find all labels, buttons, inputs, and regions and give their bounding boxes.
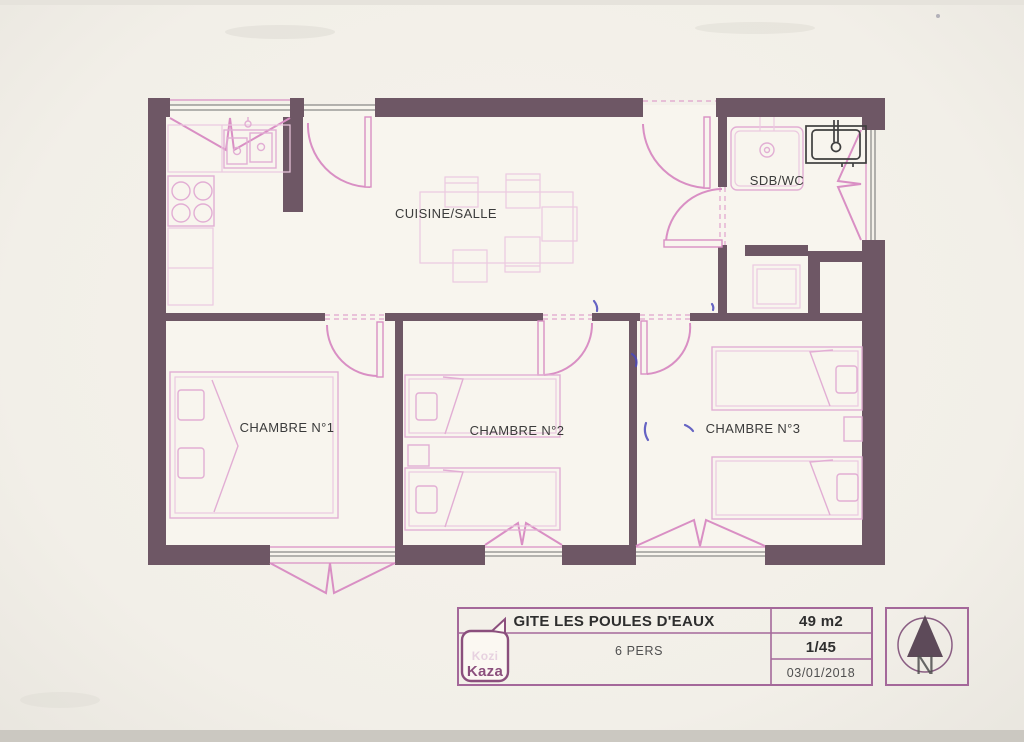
north-letter: N (915, 650, 935, 680)
drawing-date: 03/01/2018 (787, 666, 856, 680)
room-label-sdb: SDB/WC (750, 173, 804, 188)
smudge (20, 692, 100, 708)
room-label-chambre3: CHAMBRE N°3 (706, 421, 801, 436)
kozikaza-logo: Kozi Kaza (462, 619, 508, 681)
speck (936, 14, 940, 18)
scan-edge-bottom (0, 730, 1024, 742)
smudge (225, 25, 335, 39)
logo-fold (492, 619, 505, 633)
title-block: GITE LES POULES D'EAUX 49 m2 6 PERS 1/45… (458, 608, 872, 685)
wall-stub-kitchen (283, 117, 303, 212)
logo-text-bottom: Kaza (467, 663, 504, 680)
surface-area: 49 m2 (799, 613, 843, 630)
floor-plan-drawing: CUISINE/SALLE SDB/WC CHAMBRE N°1 CHAMBRE… (0, 0, 1024, 742)
scan-edge-top (0, 0, 1024, 5)
north-compass: N (886, 608, 968, 685)
project-name: GITE LES POULES D'EAUX (513, 613, 714, 630)
drawing-scale: 1/45 (806, 639, 836, 656)
logo-text-top: Kozi (472, 649, 499, 663)
smudge (695, 22, 815, 34)
room-label-chambre2: CHAMBRE N°2 (470, 423, 565, 438)
room-label-cuisine: CUISINE/SALLE (395, 206, 497, 221)
scanned-floor-plan-page: { "colors": { "wall": "#6e5765", "door_p… (0, 0, 1024, 742)
wall-ch1-ch2 (395, 321, 403, 545)
capacity: 6 PERS (615, 644, 663, 658)
room-label-chambre1: CHAMBRE N°1 (240, 420, 335, 435)
